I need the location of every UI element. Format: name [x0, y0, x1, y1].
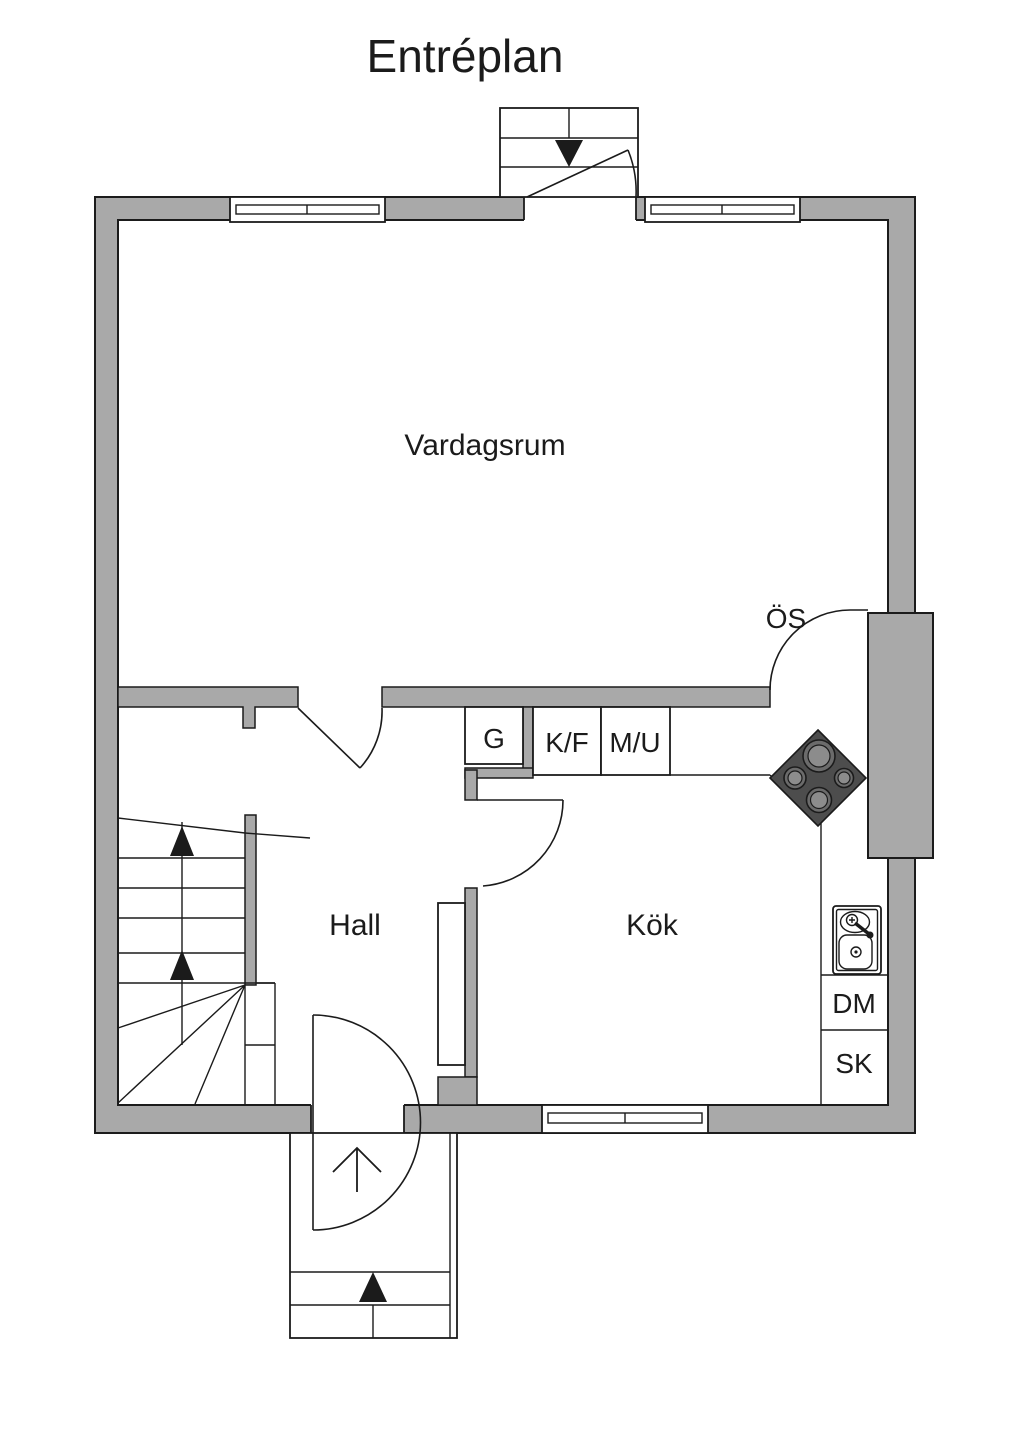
hall-closet: [438, 903, 465, 1065]
top-stoop-steps: [500, 108, 638, 197]
label-dishwasher: DM: [832, 988, 876, 1019]
wall-hall-kitchen-top: [465, 770, 477, 800]
label-microwave-oven: M/U: [609, 727, 660, 758]
stair-up-arrow2-icon: [170, 950, 194, 980]
wall-stair: [245, 815, 256, 985]
window-top-right: [645, 197, 800, 222]
wall-stub-wardrobe: [523, 707, 533, 775]
label-living-room: Vardagsrum: [404, 429, 565, 462]
window-bottom-kitchen: [542, 1105, 708, 1133]
floor-plan: Entréplan Vardagsrum Hall Kök ÖS G K/F M…: [0, 0, 1024, 1448]
label-fireplace: ÖS: [766, 603, 806, 634]
wall-hall-kitchen-foot: [438, 1077, 477, 1105]
wall-living-hall: [118, 687, 298, 728]
sink-icon: [833, 906, 881, 974]
label-hall: Hall: [329, 909, 381, 942]
label-cabinet: SK: [835, 1048, 873, 1079]
label-fridge-freezer: K/F: [545, 727, 589, 758]
fireplace-block: [868, 613, 933, 858]
top-door-gap: [524, 195, 636, 223]
front-door-gap: [311, 1103, 404, 1135]
wall-living-kitchen: [382, 687, 770, 707]
stove-icon: [770, 730, 866, 826]
hall-living-door: [298, 708, 382, 768]
page-title: Entréplan: [367, 30, 564, 82]
window-top-left: [230, 197, 385, 222]
kitchen-door: [477, 800, 563, 886]
outer-walls: [95, 197, 915, 1133]
label-kitchen: Kök: [626, 909, 679, 942]
stair-up-arrow-icon: [170, 826, 194, 856]
floor-plan-page: Entréplan Vardagsrum Hall Kök ÖS G K/F M…: [0, 0, 1024, 1448]
wall-hall-kitchen: [465, 888, 477, 1077]
stairs: [118, 818, 310, 1105]
label-wardrobe: G: [483, 723, 505, 754]
